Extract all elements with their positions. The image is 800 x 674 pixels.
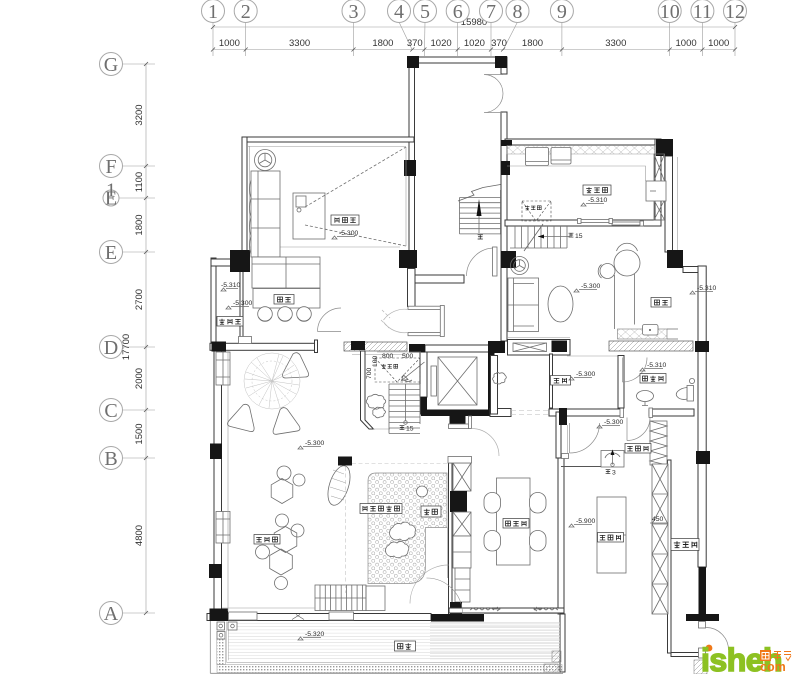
svg-text:1100: 1100 (134, 172, 145, 192)
svg-text:370: 370 (491, 38, 507, 49)
svg-text:3: 3 (612, 470, 616, 477)
svg-text:C: C (104, 400, 117, 422)
svg-text:12: 12 (725, 1, 745, 23)
svg-text:-5.300: -5.300 (339, 230, 358, 237)
svg-text:4800: 4800 (134, 525, 145, 546)
svg-text:G: G (104, 54, 118, 76)
svg-text:-5.300: -5.300 (604, 419, 623, 426)
svg-text:1000: 1000 (219, 38, 240, 49)
svg-text:-5.300: -5.300 (581, 283, 600, 290)
svg-text:4: 4 (394, 1, 404, 23)
svg-text:-5.310: -5.310 (697, 285, 716, 292)
svg-text:370: 370 (407, 38, 423, 49)
svg-text:1: 1 (208, 1, 218, 23)
svg-text:500: 500 (402, 353, 414, 360)
svg-text:1000: 1000 (676, 38, 697, 49)
svg-text:A: A (104, 603, 119, 625)
svg-text:100: 100 (372, 355, 379, 367)
svg-text:-5.320: -5.320 (305, 631, 324, 638)
svg-text:800: 800 (382, 353, 394, 360)
svg-text:D: D (104, 337, 118, 359)
svg-text:3200: 3200 (134, 104, 145, 125)
svg-text:1020: 1020 (464, 38, 485, 49)
svg-text:9: 9 (557, 1, 567, 23)
svg-text:10: 10 (660, 1, 680, 23)
svg-text:11: 11 (693, 1, 712, 23)
svg-text:3: 3 (349, 1, 359, 23)
svg-text:1000: 1000 (708, 38, 729, 49)
svg-text:15: 15 (575, 233, 583, 240)
svg-text:-5.300: -5.300 (305, 440, 324, 447)
svg-text:1800: 1800 (134, 214, 145, 235)
svg-text:B: B (104, 448, 117, 470)
svg-text:E: E (105, 188, 117, 210)
svg-text:3300: 3300 (605, 38, 626, 49)
svg-text:1500: 1500 (134, 423, 145, 444)
svg-text:1800: 1800 (522, 38, 543, 49)
svg-text:3300: 3300 (289, 38, 310, 49)
svg-text:450: 450 (652, 516, 664, 523)
svg-text:-5.900: -5.900 (576, 518, 595, 525)
svg-text:-5.310: -5.310 (588, 197, 607, 204)
svg-text:2700: 2700 (134, 289, 145, 310)
svg-text:2000: 2000 (134, 368, 145, 389)
svg-text:1800: 1800 (372, 38, 393, 49)
svg-text:8: 8 (513, 1, 523, 23)
svg-text:1020: 1020 (431, 38, 452, 49)
svg-text:700: 700 (366, 367, 373, 379)
svg-text:com: com (760, 660, 786, 674)
svg-text:5: 5 (420, 1, 430, 23)
svg-text:-5.300: -5.300 (233, 300, 252, 307)
svg-text:15: 15 (406, 426, 414, 433)
svg-text:-5.310: -5.310 (647, 362, 666, 369)
svg-text:2: 2 (241, 1, 251, 23)
svg-text:7: 7 (486, 1, 496, 23)
svg-text:-5.300: -5.300 (576, 371, 595, 378)
svg-text:F: F (105, 156, 116, 178)
svg-text:E: E (105, 242, 117, 264)
svg-text:6: 6 (453, 1, 463, 23)
